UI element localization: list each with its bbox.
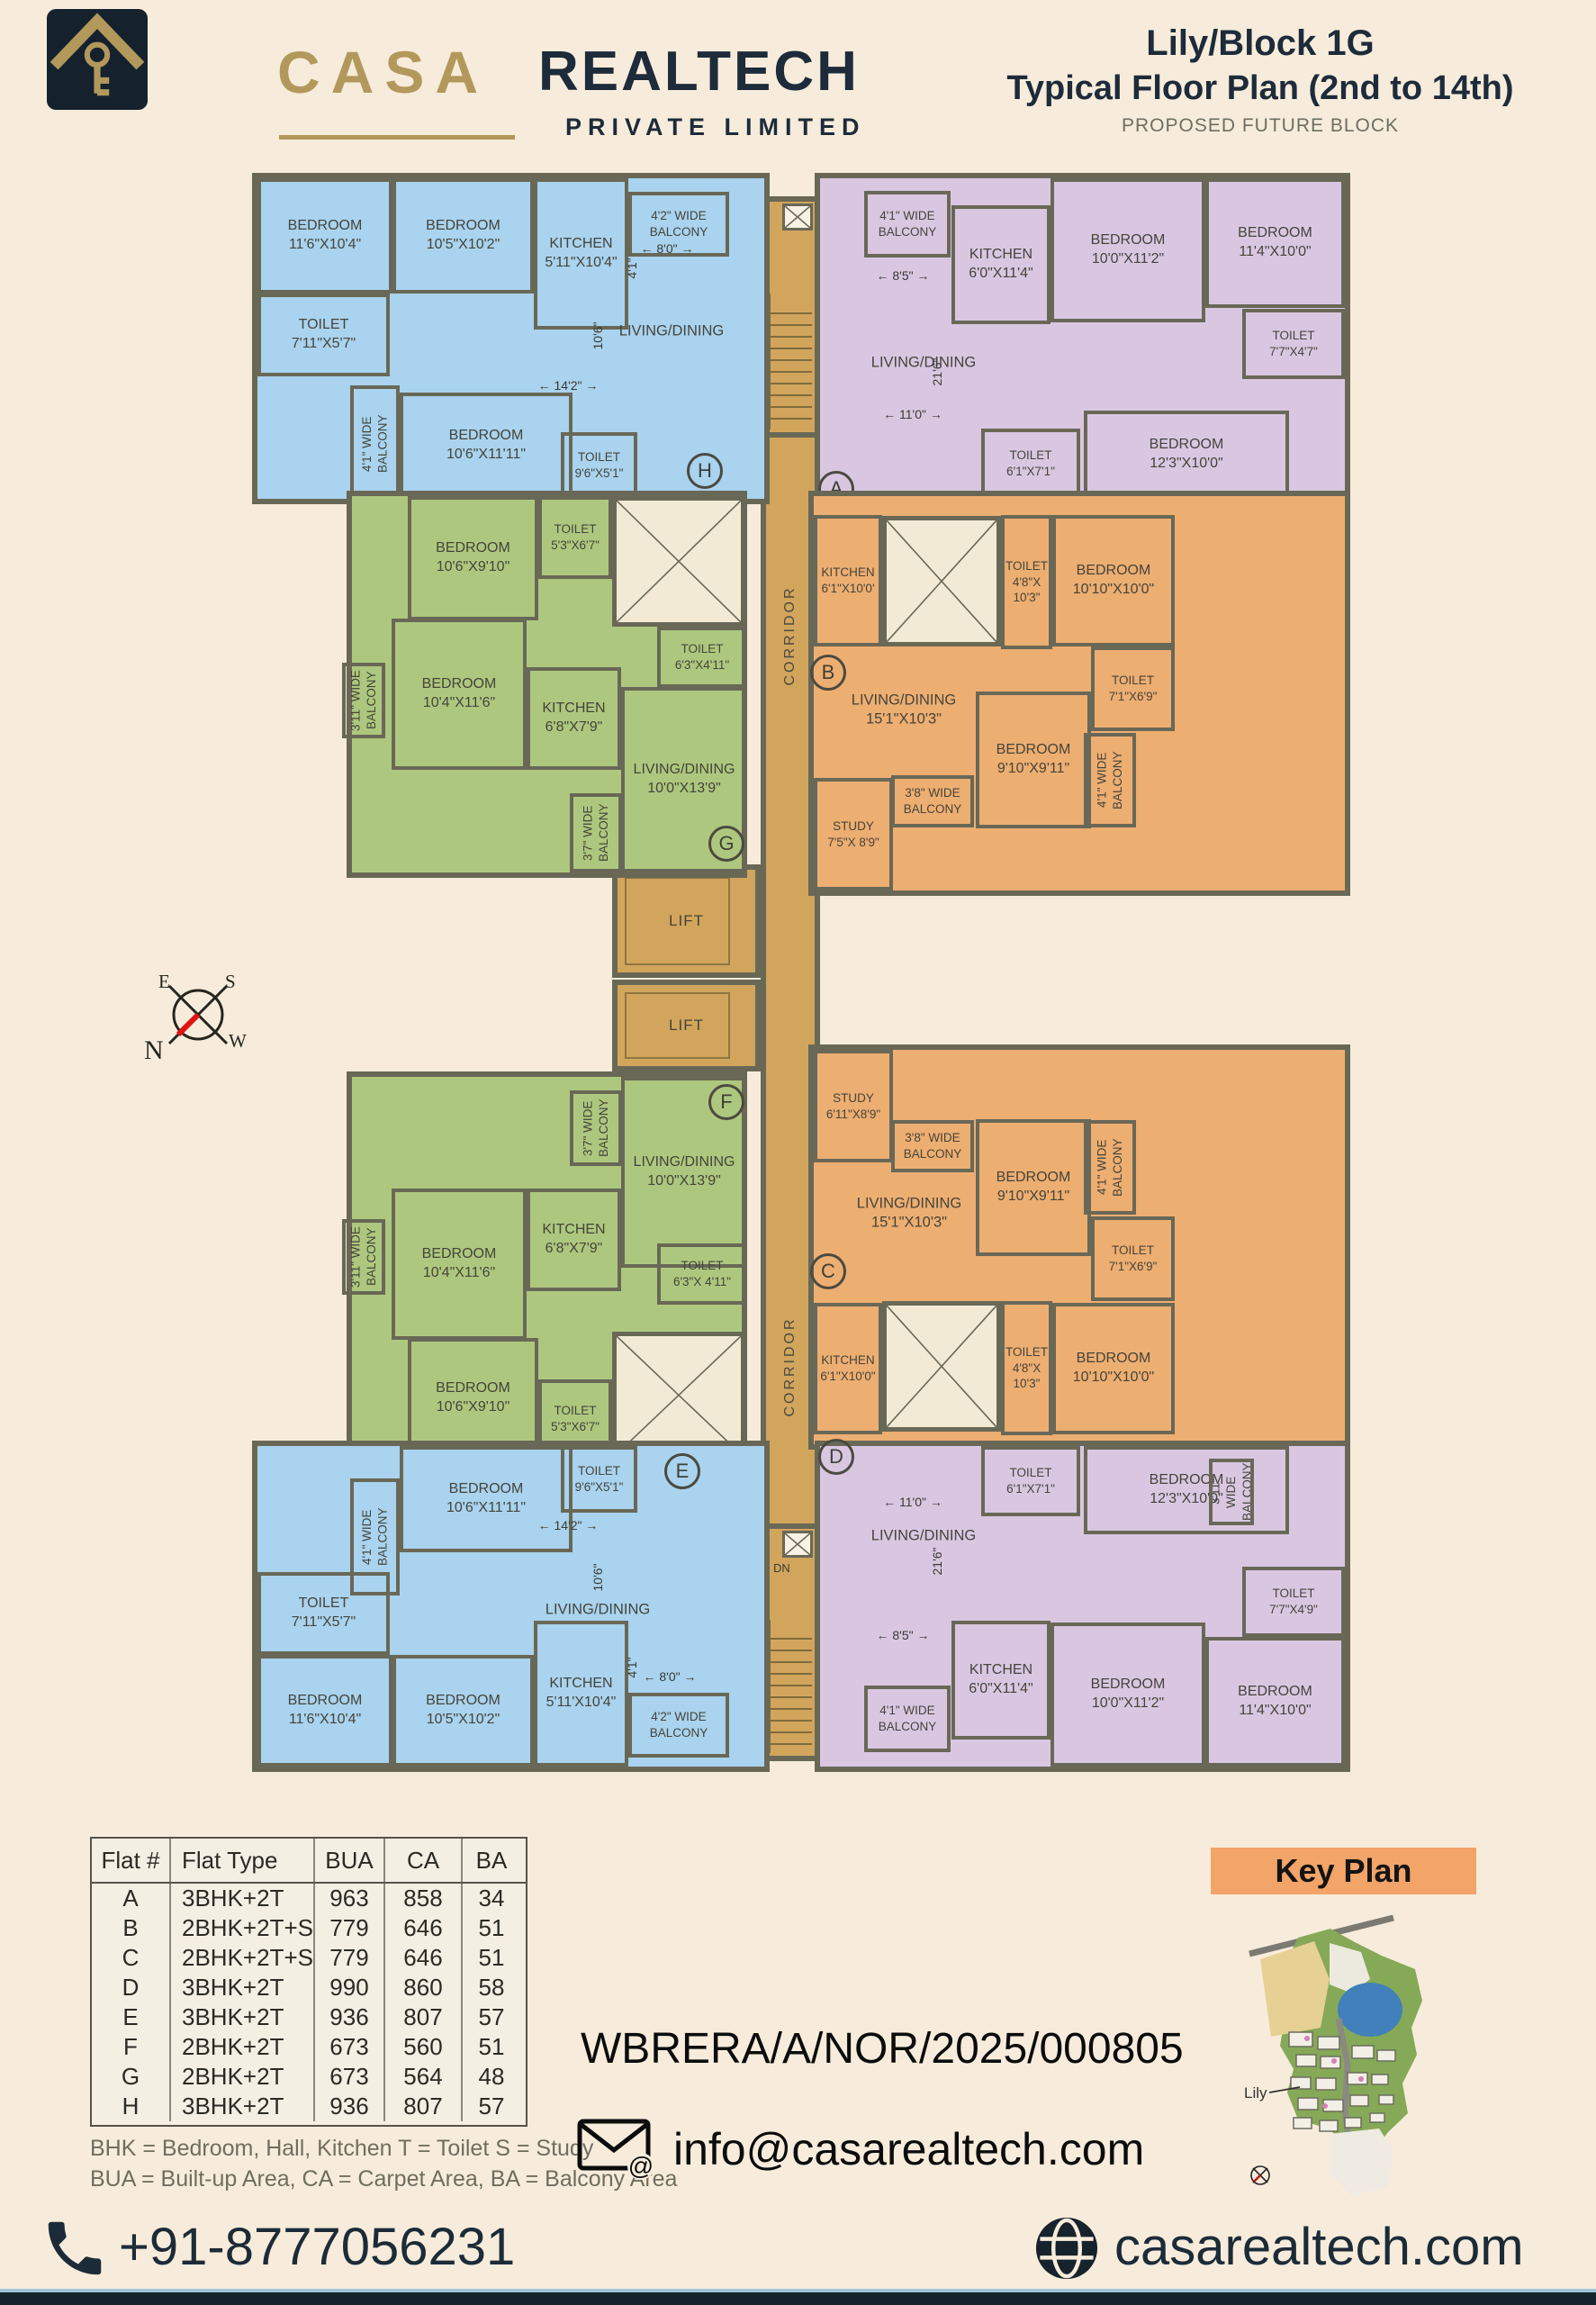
cell: 3BHK+2T: [169, 1884, 313, 1913]
cell: 57: [461, 2002, 520, 2032]
key-plan-lily-label: Lily: [1244, 2084, 1267, 2102]
lift-cab: [625, 992, 730, 1059]
b-kitchen: KITCHEN 6'1"X10'0': [814, 515, 882, 646]
cell: 51: [461, 1913, 520, 1943]
g-toilet-1: TOILET 5'3"X6'7": [538, 496, 612, 579]
f-shaft: [612, 1332, 745, 1459]
cell: 936: [313, 2002, 383, 2032]
unit-label-f: F: [708, 1084, 744, 1120]
table-header-row: Flat # Flat Type BUA CA BA: [92, 1839, 526, 1884]
h-bedroom-2: BEDROOM 10'5"X10'2": [392, 178, 534, 294]
svg-text:@: @: [628, 2152, 654, 2180]
unit-label-e: E: [664, 1453, 700, 1489]
cell: E: [92, 2003, 169, 2031]
globe-icon: [1033, 2215, 1100, 2282]
dim: 4'1": [625, 1657, 639, 1677]
col-bua: BUA: [313, 1839, 383, 1882]
cell: 58: [461, 1973, 520, 2002]
d-balcony-311: 3'11" WIDE BALCONY: [1209, 1459, 1254, 1525]
g-toilet-2: TOILET 6'3"X4'11": [657, 627, 747, 688]
corridor-label: CORRIDOR: [782, 585, 798, 685]
unit-label-h: H: [687, 453, 723, 489]
compass-s: S: [225, 971, 236, 993]
b-balcony-38: 3'8" WIDE BALCONY: [891, 775, 974, 827]
cell: 57: [461, 2092, 520, 2121]
plan-subtitle: PROPOSED FUTURE BLOCK: [999, 115, 1521, 137]
key-plan-banner: Key Plan: [1211, 1848, 1476, 1894]
cell: 858: [383, 1884, 461, 1913]
d-living-dining: LIVING/DINING: [871, 1526, 976, 1545]
block-title: Lily/Block 1G: [999, 23, 1521, 64]
dim: 8'0": [644, 1669, 697, 1684]
website-url[interactable]: casarealtech.com: [1114, 2217, 1524, 2277]
cell: 2BHK+2T+S: [169, 1943, 313, 1973]
table-row: E3BHK+2T93680757: [92, 2002, 526, 2032]
table-row: F2BHK+2T67356051: [92, 2032, 526, 2062]
plan-title-block: Lily/Block 1G Typical Floor Plan (2nd to…: [999, 23, 1521, 137]
cell: D: [92, 1974, 169, 2002]
cell: 779: [313, 1913, 383, 1943]
unit-e: TOILET 9'6"X5'1" BEDROOM 10'6"X11'11" 4'…: [252, 1441, 770, 1772]
unit-g: BEDROOM 10'6"X9'10" TOILET 5'3"X6'7" TOI…: [347, 491, 747, 878]
shaft-hatch: [782, 203, 813, 230]
table-row: C2BHK+2T+S77964651: [92, 1943, 526, 1973]
f-kitchen: KITCHEN 6'8"X7'9": [527, 1189, 621, 1291]
cell: 564: [383, 2062, 461, 2092]
dim: 11'0": [883, 1495, 942, 1509]
e-bedroom-2: BEDROOM 10'5"X10'2": [392, 1655, 534, 1767]
compass-e: E: [158, 971, 170, 993]
unit-h: BEDROOM 11'6"X10'4" BEDROOM 10'5"X10'2" …: [252, 173, 770, 504]
dim: 21'6": [930, 1547, 944, 1575]
b-study: STUDY 7'5"X 8'9": [814, 778, 893, 890]
cell: 560: [383, 2032, 461, 2062]
phone-number[interactable]: +91-8777056231: [119, 2217, 515, 2277]
c-bedroom-1: BEDROOM 10'10"X10'0": [1052, 1303, 1175, 1434]
h-toilet-1: TOILET 7'11"X5'7": [257, 294, 390, 376]
cell: 51: [461, 1943, 520, 1973]
table-row: H3BHK+2T93680757: [92, 2092, 526, 2121]
table-row: B2BHK+2T+S77964651: [92, 1913, 526, 1943]
c-balcony-38: 3'8" WIDE BALCONY: [891, 1120, 974, 1172]
a-toilet-2: TOILET 6'1"X7'1": [981, 429, 1080, 499]
d-kitchen: KITCHEN 6'0"X11'4": [951, 1621, 1050, 1740]
g-balcony-37: 3'7" WIDE BALCONY: [570, 793, 622, 872]
unit-a: 4'1" WIDE BALCONY KITCHEN 6'0"X11'4" BED…: [815, 173, 1350, 504]
cell: 2BHK+2T: [169, 2032, 313, 2062]
d-bedroom-2: BEDROOM 11'4"X10'0": [1205, 1637, 1345, 1767]
g-shaft: [612, 496, 745, 627]
c-shaft: [882, 1301, 1001, 1432]
compass-n: N: [144, 1035, 164, 1066]
unit-d: TOILET 6'1"X7'1" BEDROOM 12'3"X10'0" 3'1…: [815, 1441, 1350, 1772]
col-ba: BA: [461, 1839, 520, 1882]
c-balcony-41: 4'1" WIDE BALCONY: [1084, 1120, 1136, 1215]
d-balcony-41: 4'1" WIDE BALCONY: [864, 1686, 951, 1752]
c-study: STUDY 6'11"X8'9": [814, 1050, 893, 1162]
dim: 21'6": [930, 357, 944, 385]
cell: 860: [383, 1973, 461, 2002]
cell: 34: [461, 1884, 520, 1913]
dim: 4'1": [625, 258, 639, 278]
e-bedroom-1: BEDROOM 11'6"X10'4": [257, 1655, 392, 1767]
c-kitchen: KITCHEN 6'1"X10'0": [814, 1303, 882, 1434]
b-living-dining: LIVING/DINING 15'1"X10'3": [852, 691, 956, 730]
d-toilet-2: TOILET 6'1"X7'1": [981, 1446, 1080, 1516]
e-living-dining: LIVING/DINING: [546, 1600, 650, 1619]
email-icon: @: [576, 2118, 659, 2183]
note-bhk: BHK = Bedroom, Hall, Kitchen T = Toilet …: [90, 2136, 593, 2162]
a-bedroom-3: BEDROOM 12'3"X10'0": [1084, 411, 1289, 499]
f-toilet-2: TOILET 6'3"X 4'11": [657, 1243, 747, 1305]
unit-label-c: C: [810, 1253, 846, 1289]
table-row: A3BHK+2T96385834: [92, 1884, 526, 1913]
d-bedroom-3: BEDROOM 12'3"X10'0": [1084, 1446, 1289, 1534]
compass: E S N W: [142, 965, 259, 1078]
e-kitchen: KITCHEN 5'11'X10'4": [534, 1621, 628, 1767]
b-toilet-2: TOILET 7'1"X6'9": [1091, 646, 1175, 731]
flat-area-table: Flat # Flat Type BUA CA BA A3BHK+2T96385…: [90, 1837, 527, 2127]
dim: 14'2": [538, 378, 599, 393]
h-bedroom-1: BEDROOM 11'6"X10'4": [257, 178, 392, 294]
a-bedroom-1: BEDROOM 10'0"X11'2": [1050, 178, 1205, 322]
cell: 646: [383, 1943, 461, 1973]
rera-number: WBRERA/A/NOR/2025/000805: [581, 2024, 1184, 2074]
col-flat-type: Flat Type: [169, 1839, 313, 1882]
d-bedroom-1: BEDROOM 10'0"X11'2": [1050, 1623, 1205, 1767]
unit-f: 3'7" WIDE BALCONY LIVING/DINING 10'0"X13…: [347, 1071, 747, 1459]
e-bedroom-3: BEDROOM 10'6"X11'11": [400, 1446, 573, 1552]
c-toilet-1: TOILET 4'8"X 10'3": [1001, 1301, 1052, 1435]
c-living-dining: LIVING/DINING 15'1"X10'3": [857, 1195, 961, 1234]
cell: 48: [461, 2062, 520, 2092]
cell: 2BHK+2T+S: [169, 1913, 313, 1943]
dim: 14'2": [538, 1518, 599, 1532]
dim: 8'0": [641, 241, 694, 256]
cell: 51: [461, 2032, 520, 2062]
unit-label-d: D: [818, 1439, 854, 1475]
dim: 10'6": [591, 1563, 605, 1591]
floor-plan-page: CASA REALTECH PRIVATE LIMITED Lily/Block…: [0, 0, 1596, 2305]
a-bedroom-2: BEDROOM 11'4"X10'0": [1205, 178, 1345, 308]
b-shaft: [882, 516, 1001, 646]
table-row: D3BHK+2T99086058: [92, 1973, 526, 2002]
email-address[interactable]: info@casarealtech.com: [673, 2123, 1144, 2175]
h-toilet-2: TOILET 9'6"X5'1": [561, 432, 637, 499]
cell: 990: [313, 1973, 383, 2002]
cell: 673: [313, 2032, 383, 2062]
lift-cab: [625, 877, 730, 965]
g-bedroom-1: BEDROOM 10'6"X9'10": [408, 496, 538, 620]
cell: 673: [313, 2062, 383, 2092]
cell: 963: [313, 1884, 383, 1913]
unit-label-g: G: [708, 826, 744, 862]
compass-w: W: [229, 1030, 247, 1053]
f-bedroom-1: BEDROOM 10'4"X11'6": [392, 1189, 527, 1340]
brand-casa: CASA: [277, 38, 489, 106]
cell: 2BHK+2T: [169, 2062, 313, 2092]
cell: 3BHK+2T: [169, 2002, 313, 2032]
footer-bar: [0, 2292, 1596, 2305]
h-balcony-41: 4'1" WIDE BALCONY: [350, 385, 400, 502]
unit-b: KITCHEN 6'1"X10'0' TOILET 4'8"X 10'3" BE…: [808, 491, 1350, 896]
cell: G: [92, 2063, 169, 2091]
cell: A: [92, 1885, 169, 1912]
a-balcony-41: 4'1" WIDE BALCONY: [864, 191, 951, 258]
lift-1: LIFT: [612, 864, 761, 978]
cell: 3BHK+2T: [169, 1973, 313, 2002]
shaft-hatch: [782, 1531, 813, 1558]
lift-2: LIFT: [612, 980, 761, 1071]
cell: C: [92, 1944, 169, 1972]
a-kitchen: KITCHEN 6'0"X11'4": [951, 205, 1050, 324]
cell: B: [92, 1914, 169, 1942]
e-toilet-1: TOILET 7'11"X5'7": [257, 1572, 390, 1655]
casa-realtech-logo-icon: [47, 9, 148, 110]
cell: 646: [383, 1913, 461, 1943]
g-kitchen: KITCHEN 6'8"X7'9": [527, 667, 621, 770]
b-toilet-1: TOILET 4'8"X 10'3": [1001, 515, 1052, 649]
a-living-dining: LIVING/DINING: [871, 353, 976, 372]
f-balcony-311: 3'11" WIDE BALCONY: [342, 1219, 385, 1295]
g-balcony-311: 3'11" WIDE BALCONY: [342, 663, 385, 738]
cell: 3BHK+2T: [169, 2092, 313, 2121]
h-bedroom-3: BEDROOM 10'6"X11'11": [400, 393, 573, 499]
e-balcony-42: 4'2" WIDE BALCONY: [628, 1693, 729, 1758]
dim: 11'0": [883, 407, 942, 421]
unit-c: STUDY 6'11"X8'9" 3'8" WIDE BALCONY BEDRO…: [808, 1044, 1350, 1450]
cell: 807: [383, 2002, 461, 2032]
corridor-label: CORRIDOR: [782, 1316, 798, 1416]
h-kitchen: KITCHEN 5'11"X10'4": [534, 178, 628, 330]
cell: 779: [313, 1943, 383, 1973]
b-bedroom-2: BEDROOM 9'10"X9'11": [976, 691, 1091, 828]
cell: 807: [383, 2092, 461, 2121]
brand-subtitle: PRIVATE LIMITED: [565, 113, 866, 141]
stairs-dn-label: DN: [773, 1561, 790, 1575]
table-row: G2BHK+2T67356448: [92, 2062, 526, 2092]
plan-title: Typical Floor Plan (2nd to 14th): [999, 69, 1521, 108]
cell: F: [92, 2033, 169, 2061]
b-balcony-41: 4'1" WIDE BALCONY: [1084, 733, 1136, 827]
col-flat-no: Flat #: [92, 1847, 169, 1875]
key-plan-map: Lily: [1242, 1902, 1458, 2203]
unit-label-b: B: [810, 655, 846, 691]
cell: H: [92, 2093, 169, 2120]
a-toilet-1: TOILET 7'7"X4'7": [1242, 309, 1345, 379]
dim: 8'5": [877, 1628, 930, 1642]
phone-icon: [40, 2213, 110, 2283]
h-living-dining: LIVING/DINING: [619, 321, 724, 340]
dim: 8'5": [877, 268, 930, 283]
d-toilet-1: TOILET 7'7"X4'9": [1242, 1567, 1345, 1637]
dim: 10'6": [591, 321, 605, 349]
c-bedroom-2: BEDROOM 9'10"X9'11": [976, 1119, 1091, 1256]
c-toilet-2: TOILET 7'1"X6'9": [1091, 1216, 1175, 1301]
brand-underline: [279, 135, 515, 140]
f-balcony-37: 3'7" WIDE BALCONY: [570, 1090, 622, 1166]
g-bedroom-2: BEDROOM 10'4"X11'6": [392, 619, 527, 770]
b-bedroom-1: BEDROOM 10'10"X10'0": [1052, 515, 1175, 646]
brand-realtech: REALTECH: [538, 40, 860, 104]
col-ca: CA: [383, 1839, 461, 1882]
cell: 936: [313, 2092, 383, 2121]
